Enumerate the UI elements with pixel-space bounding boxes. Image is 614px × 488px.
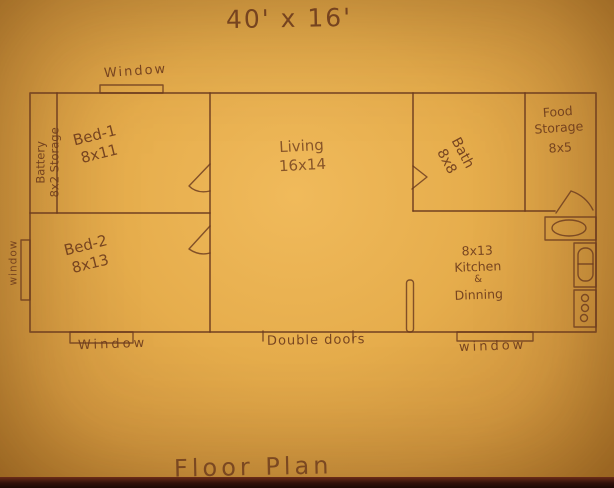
kitchen-stub-wall xyxy=(407,280,414,332)
stove-burners xyxy=(574,290,596,327)
food-storage-line2: Storage xyxy=(527,117,590,137)
entry-door-swing xyxy=(556,191,593,213)
battery-storage-label: Battery 8x2 Storage xyxy=(34,102,63,222)
bed2-door-swing xyxy=(189,226,210,254)
food-storage-label: Food Storage 8x5 xyxy=(526,102,591,158)
battery-storage-line2: 8x2 Storage xyxy=(48,102,62,222)
bath-door-swing xyxy=(412,166,427,189)
living-label: Living 16x14 xyxy=(261,135,343,177)
bed1-door-swing xyxy=(189,164,210,192)
window-bottom-left-label: Window xyxy=(78,336,148,355)
kitchen-line3: Dinning xyxy=(443,285,516,303)
window-left-label: window xyxy=(7,232,20,294)
window-left-symbol xyxy=(21,240,30,300)
kitchen-sink-counter xyxy=(545,217,596,240)
window-bottom-right-label: window xyxy=(459,338,527,357)
kitchen-fixture xyxy=(574,243,596,287)
dimensions-title: 40' x 16' xyxy=(226,2,353,35)
kitchen-label: 8x13 Kitchen & Dinning xyxy=(441,242,515,304)
battery-storage-line1: Battery xyxy=(34,102,48,222)
floor-plan-photo: 40' x 16' Window Battery 8x2 Storage Bed… xyxy=(0,0,614,488)
double-doors-label: Double doors xyxy=(267,332,366,350)
window-top-symbol xyxy=(100,85,163,93)
table-edge xyxy=(0,477,614,488)
